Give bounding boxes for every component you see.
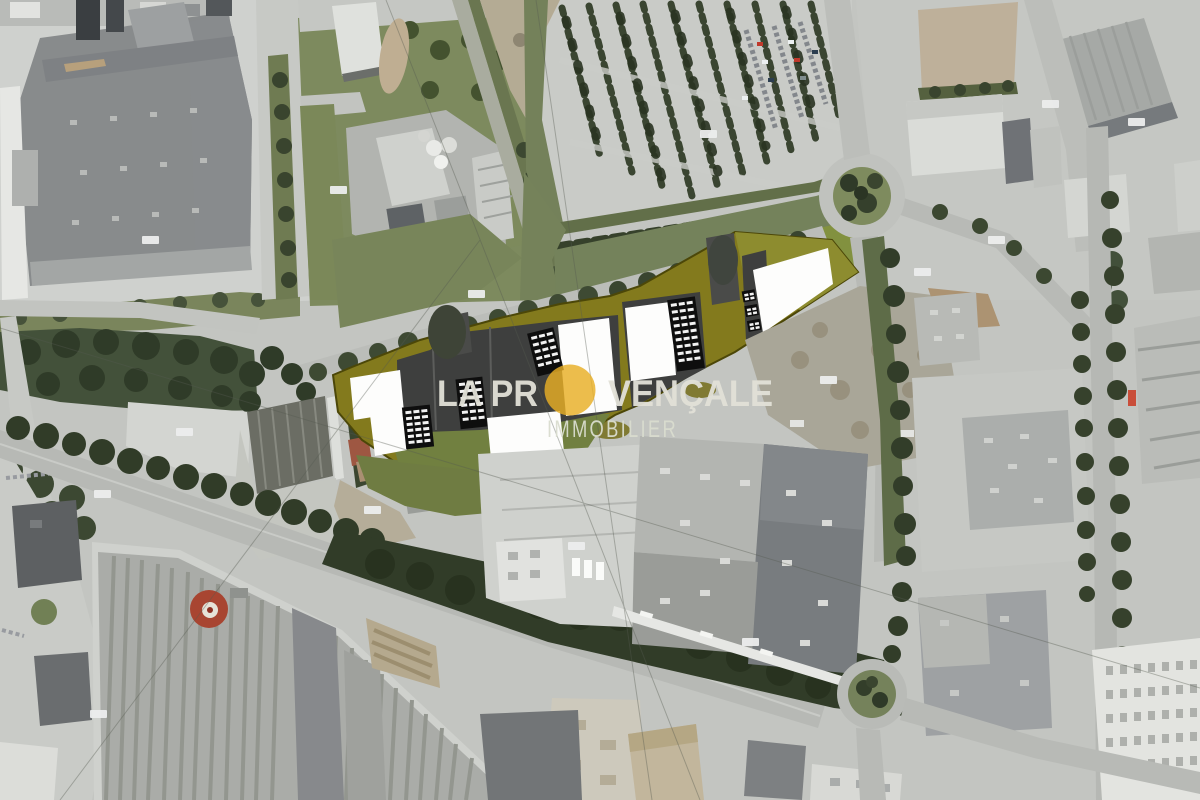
svg-text:IMMOBILIER: IMMOBILIER xyxy=(547,416,678,443)
svg-text:VENÇALE: VENÇALE xyxy=(608,373,773,414)
svg-text:LA PR: LA PR xyxy=(437,373,538,414)
